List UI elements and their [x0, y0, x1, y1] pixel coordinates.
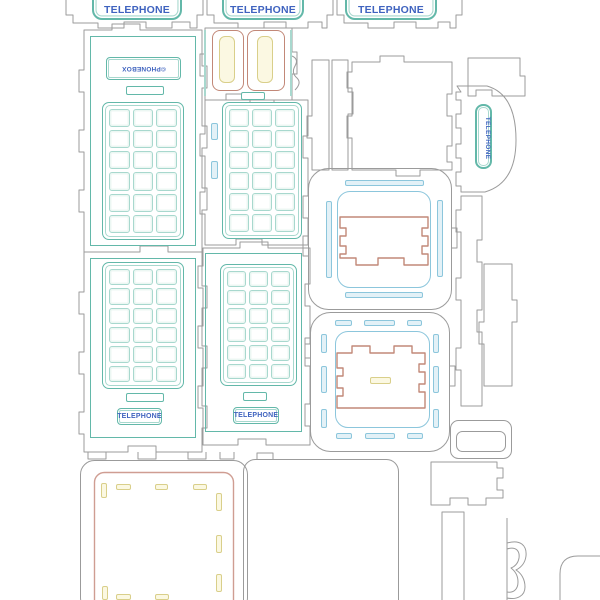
cutting-sheet: TELEPHONE TELEPHONE TELEPHONE ©PHONEBOX …: [0, 0, 600, 600]
window-pane: [275, 109, 295, 127]
window-pane: [156, 130, 177, 148]
piece-castellated: [431, 462, 503, 505]
window-pane: [252, 151, 272, 169]
window-pane: [252, 214, 272, 232]
window-pane: [156, 109, 177, 127]
window-grid-frame-1: [102, 102, 184, 240]
roof1-slot-right: [437, 200, 443, 277]
window-pane: [271, 308, 290, 324]
window-pane: [156, 269, 177, 285]
window-pane: [275, 172, 295, 190]
coin-slot-mark-1: [126, 86, 164, 95]
window-pane: [249, 327, 268, 343]
window-pane: [109, 327, 130, 343]
panel-slot-cyan-2: [211, 161, 218, 179]
piece-corner-bottom-right: [560, 556, 600, 600]
window-grid-frame-2: [102, 262, 184, 389]
piece-slot-plate: [451, 421, 512, 459]
telephone-sign-label: TELEPHONE: [104, 4, 170, 16]
window-grid-frame-4: [220, 264, 297, 386]
roof1-inner-frame: [337, 191, 431, 288]
window-pane: [229, 214, 249, 232]
window-pane: [249, 364, 268, 380]
window-pane: [229, 130, 249, 148]
window-pane: [156, 194, 177, 212]
roof2-center-slot: [370, 377, 391, 384]
roof2-slot: [407, 320, 422, 326]
piece-right-strip-1: [456, 196, 482, 406]
telephone-plaque-mid: TELEPHONE: [233, 407, 279, 424]
window-pane: [109, 151, 130, 169]
telephone-sign-top-1: TELEPHONE: [92, 0, 182, 20]
window-pane: [275, 214, 295, 232]
window-pane: [109, 366, 130, 382]
window-grid-1: [105, 105, 181, 237]
window-pane: [156, 151, 177, 169]
window-pane: [271, 345, 290, 361]
telephone-plaque-left: TELEPHONE: [117, 408, 162, 425]
window-pane: [133, 366, 154, 382]
roof2-slot: [321, 409, 327, 428]
base-slot: [116, 484, 131, 490]
window-pane: [275, 151, 295, 169]
window-pane: [133, 109, 154, 127]
telephone-sign-vertical: TELEPHONE: [475, 104, 492, 169]
window-pane: [271, 271, 290, 287]
roof2-slot: [335, 320, 352, 326]
base-slot: [101, 483, 107, 498]
window-pane: [109, 215, 130, 233]
telephone-sign-label: TELEPHONE: [230, 4, 296, 16]
piece-bottom-middle: [244, 460, 399, 600]
roof2-slot: [433, 409, 439, 428]
window-pane: [156, 366, 177, 382]
roof2-slot: [433, 334, 439, 353]
window-pane: [229, 151, 249, 169]
door-top-edge-line-left: [204, 30, 206, 96]
window-pane: [271, 364, 290, 380]
window-pane: [133, 346, 154, 362]
base-slot: [116, 594, 131, 600]
window-pane: [156, 327, 177, 343]
roof1-slot-bottom: [345, 292, 423, 298]
door-top-squiggle: [292, 56, 299, 90]
window-pane: [229, 109, 249, 127]
telephone-sign-label: TELEPHONE: [358, 4, 424, 16]
piece-bottom-strip: [442, 512, 464, 600]
window-pane: [109, 194, 130, 212]
window-pane: [109, 109, 130, 127]
window-grid-4: [223, 267, 294, 383]
window-pane: [252, 109, 272, 127]
window-pane: [109, 308, 130, 324]
telephone-plaque-label: TELEPHONE: [117, 413, 162, 420]
base-inner-border: [95, 473, 234, 600]
coin-slot-mark-2: [126, 393, 164, 402]
panel-slot-cyan-1: [211, 123, 218, 140]
window-pane: [271, 290, 290, 306]
window-pane: [109, 288, 130, 304]
telephone-sign-top-2: TELEPHONE: [222, 0, 304, 20]
window-pane: [133, 172, 154, 190]
telephone-plaque-label: TELEPHONE: [234, 412, 279, 419]
base-slot: [102, 586, 108, 600]
window-pane: [109, 346, 130, 362]
window-grid-2: [105, 265, 181, 386]
telephone-sign-top-3: TELEPHONE: [345, 0, 437, 20]
door-window-pane-1: [219, 36, 235, 83]
window-pane: [249, 290, 268, 306]
window-pane: [156, 346, 177, 362]
brand-plaque-rotated: ©PHONEBOX: [106, 57, 181, 80]
window-pane: [227, 327, 246, 343]
roof1-slot-top: [345, 180, 424, 186]
door-window-pane-2: [257, 36, 273, 83]
roof1-slot-left: [326, 201, 332, 278]
window-pane: [271, 327, 290, 343]
window-pane: [133, 327, 154, 343]
door-top-slot: [241, 92, 265, 100]
window-pane: [133, 194, 154, 212]
piece-strip-1: [307, 60, 329, 170]
window-pane: [275, 130, 295, 148]
window-pane: [109, 269, 130, 285]
window-grid-frame-3: [222, 102, 302, 239]
handset-cutout-inner: [507, 548, 519, 592]
window-pane: [227, 290, 246, 306]
window-pane: [156, 308, 177, 324]
window-pane: [133, 130, 154, 148]
door-top-edge-line-right: [290, 30, 292, 96]
base-slot: [193, 484, 207, 490]
piece-strip-2: [332, 60, 353, 170]
window-pane: [109, 172, 130, 190]
window-pane: [133, 215, 154, 233]
piece-base: [81, 461, 248, 600]
window-pane: [252, 172, 272, 190]
base-slot: [155, 484, 168, 490]
base-slot: [155, 594, 169, 600]
window-pane: [249, 271, 268, 287]
window-pane: [156, 172, 177, 190]
roof2-slot: [336, 433, 352, 439]
piece-block: [347, 56, 452, 176]
slot-plate-cutout: [457, 432, 506, 452]
roof2-slot: [433, 366, 439, 393]
window-pane: [109, 130, 130, 148]
roof2-slot: [321, 366, 327, 393]
window-pane: [227, 364, 246, 380]
piece-right-strip-2: [479, 264, 517, 386]
window-pane: [156, 215, 177, 233]
roof2-slot: [364, 320, 395, 326]
window-pane: [249, 345, 268, 361]
window-pane: [249, 308, 268, 324]
roof2-slot: [407, 433, 423, 439]
base-slot: [216, 574, 222, 592]
telephone-sign-label: TELEPHONE: [479, 108, 491, 168]
window-pane: [252, 130, 272, 148]
coin-slot-mark-3: [243, 392, 267, 401]
window-pane: [229, 172, 249, 190]
roof2-slot: [321, 334, 327, 353]
window-pane: [133, 151, 154, 169]
base-slot: [216, 535, 222, 553]
handset-cutout-outer: [507, 542, 526, 599]
window-pane: [252, 193, 272, 211]
window-pane: [133, 308, 154, 324]
window-grid-3: [225, 105, 299, 236]
window-pane: [133, 269, 154, 285]
base-slot: [216, 493, 222, 511]
brand-plaque-label: ©PHONEBOX: [122, 65, 166, 72]
window-pane: [156, 288, 177, 304]
window-pane: [227, 308, 246, 324]
roof2-slot: [365, 433, 395, 439]
window-pane: [227, 345, 246, 361]
window-pane: [229, 193, 249, 211]
window-pane: [227, 271, 246, 287]
window-pane: [133, 288, 154, 304]
window-pane: [275, 193, 295, 211]
